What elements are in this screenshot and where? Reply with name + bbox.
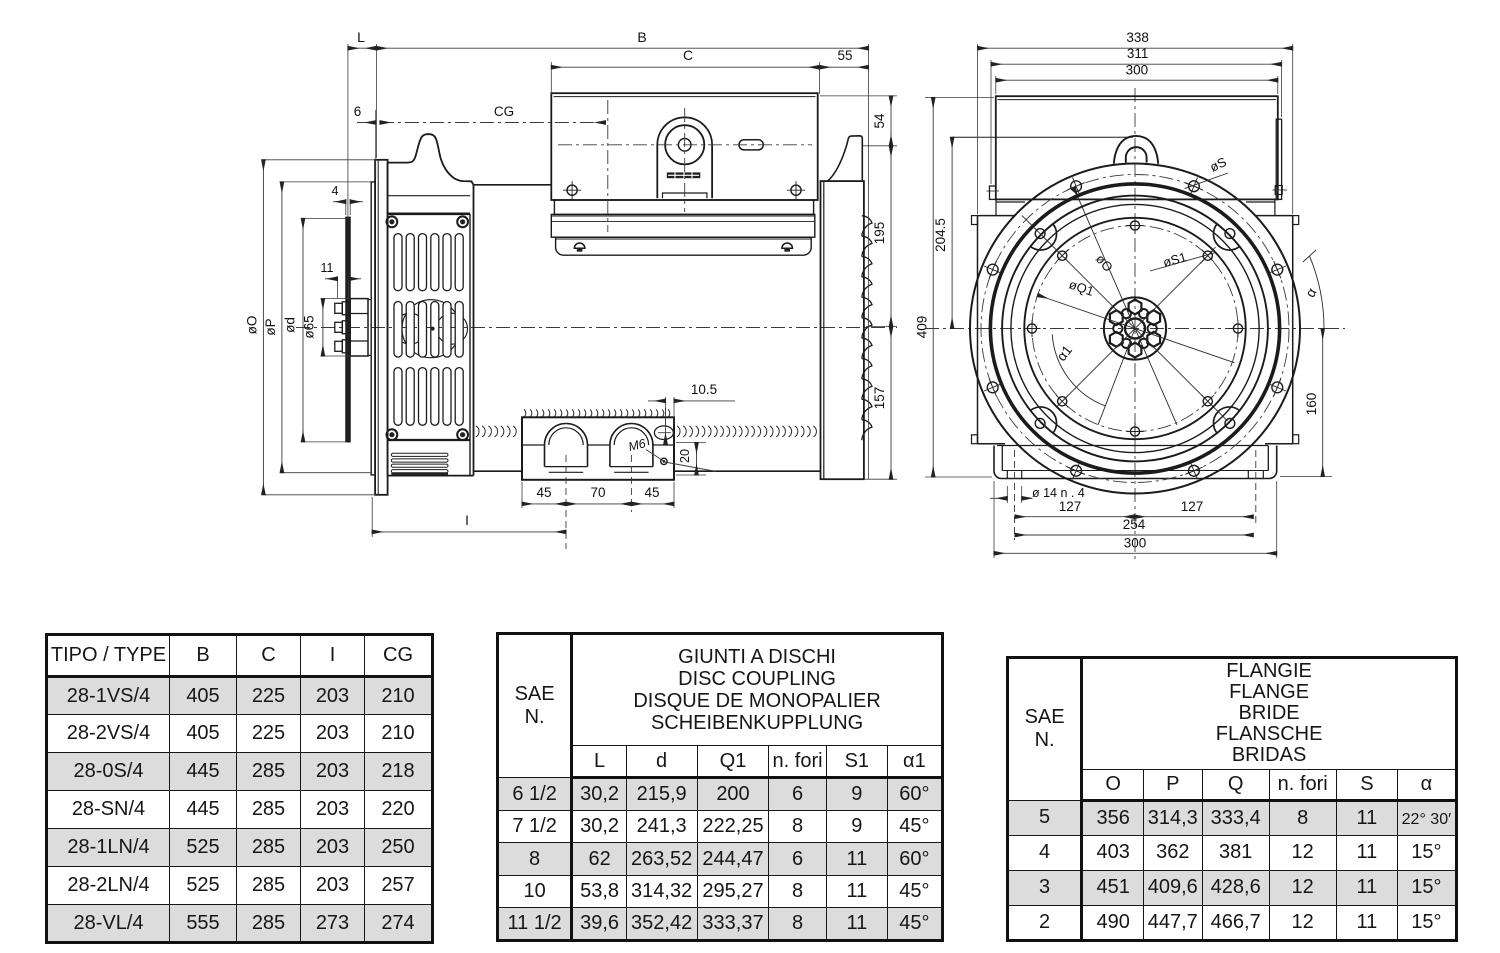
svg-text:338: 338 (1126, 30, 1149, 45)
svg-text:øO: øO (1093, 251, 1116, 274)
svg-text:300: 300 (1126, 63, 1149, 78)
svg-text:311: 311 (1127, 46, 1149, 61)
svg-text:øS1: øS1 (1161, 249, 1188, 270)
svg-text:B: B (637, 29, 646, 45)
svg-text:ød: ød (283, 317, 298, 333)
svg-text:45: 45 (536, 485, 551, 500)
svg-text:11: 11 (321, 261, 334, 275)
svg-text:160: 160 (1304, 393, 1319, 416)
svg-text:20: 20 (678, 449, 692, 463)
svg-text:CG: CG (494, 104, 514, 119)
svg-text:10.5: 10.5 (691, 382, 717, 397)
svg-text:127: 127 (1059, 499, 1082, 514)
svg-text:70: 70 (590, 485, 605, 500)
svg-text:4: 4 (332, 184, 339, 198)
svg-text:195: 195 (872, 222, 887, 245)
svg-text:204.5: 204.5 (933, 218, 948, 252)
svg-text:C: C (683, 47, 693, 63)
svg-text:ø 14 n . 4: ø 14 n . 4 (1032, 486, 1085, 500)
svg-text:157: 157 (872, 387, 887, 410)
svg-text:M6: M6 (627, 436, 647, 454)
svg-text:α1: α1 (1054, 343, 1075, 364)
svg-text:127: 127 (1181, 499, 1204, 514)
svg-text:409: 409 (915, 316, 930, 339)
svg-text:I: I (465, 513, 469, 528)
svg-text:ø65: ø65 (302, 315, 317, 338)
svg-text:øQ1: øQ1 (1067, 277, 1096, 299)
svg-text:øP: øP (263, 318, 278, 335)
svg-text:øO: øO (245, 316, 260, 335)
svg-text:55: 55 (837, 48, 852, 63)
svg-text:300: 300 (1124, 536, 1147, 551)
svg-text:øS: øS (1207, 154, 1229, 175)
svg-text:α: α (1302, 285, 1320, 300)
svg-text:54: 54 (872, 113, 887, 129)
svg-text:254: 254 (1123, 517, 1146, 532)
svg-text:6: 6 (354, 104, 362, 119)
svg-text:45: 45 (644, 485, 659, 500)
svg-text:L: L (357, 29, 365, 45)
